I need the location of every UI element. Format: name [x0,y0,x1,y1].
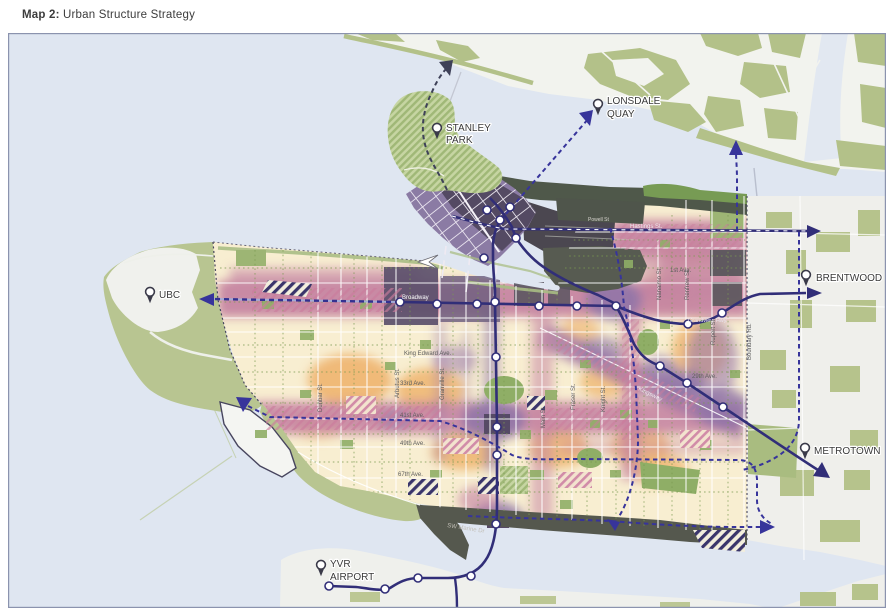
svg-text:King Edward Ave.: King Edward Ave. [404,351,452,357]
svg-text:Rupert St.: Rupert St. [711,318,717,345]
svg-text:33rd Ave.: 33rd Ave. [400,381,426,387]
svg-text:LONSDALE: LONSDALE [607,96,661,107]
svg-text:Arbutus St.: Arbutus St. [395,368,401,398]
svg-text:29th Ave.: 29th Ave. [692,374,717,380]
svg-text:Main St.: Main St. [541,406,547,428]
svg-text:BRENTWOOD: BRENTWOOD [816,273,882,284]
svg-text:Fraser St.: Fraser St. [571,383,577,410]
svg-text:49th Ave.: 49th Ave. [400,441,425,447]
svg-text:STANLEY: STANLEY [446,123,491,134]
svg-text:Knight St.: Knight St. [601,386,607,412]
svg-text:Hastings St.: Hastings St. [630,224,663,230]
svg-text:Nanaimo St.: Nanaimo St. [657,267,663,300]
svg-text:Dunbar St.: Dunbar St. [318,383,324,412]
svg-text:YVR: YVR [330,559,351,570]
svg-text:Boundary Rd.: Boundary Rd. [747,323,753,360]
svg-text:41st Ave.: 41st Ave. [400,413,425,419]
svg-text:Granville St.: Granville St. [440,367,446,400]
svg-text:PARK: PARK [446,135,473,146]
svg-text:Broadway: Broadway [402,295,429,301]
svg-text:67th Ave.: 67th Ave. [398,472,423,478]
svg-text:Grandview Hwy.: Grandview Hwy. [688,318,728,324]
svg-text:UBC: UBC [159,290,180,301]
svg-text:Renfrew St.: Renfrew St. [685,268,691,300]
svg-text:METROTOWN: METROTOWN [814,446,880,457]
svg-text:QUAY: QUAY [607,109,635,120]
svg-text:Powell St: Powell St [588,217,609,223]
svg-text:AIRPORT: AIRPORT [330,572,374,583]
